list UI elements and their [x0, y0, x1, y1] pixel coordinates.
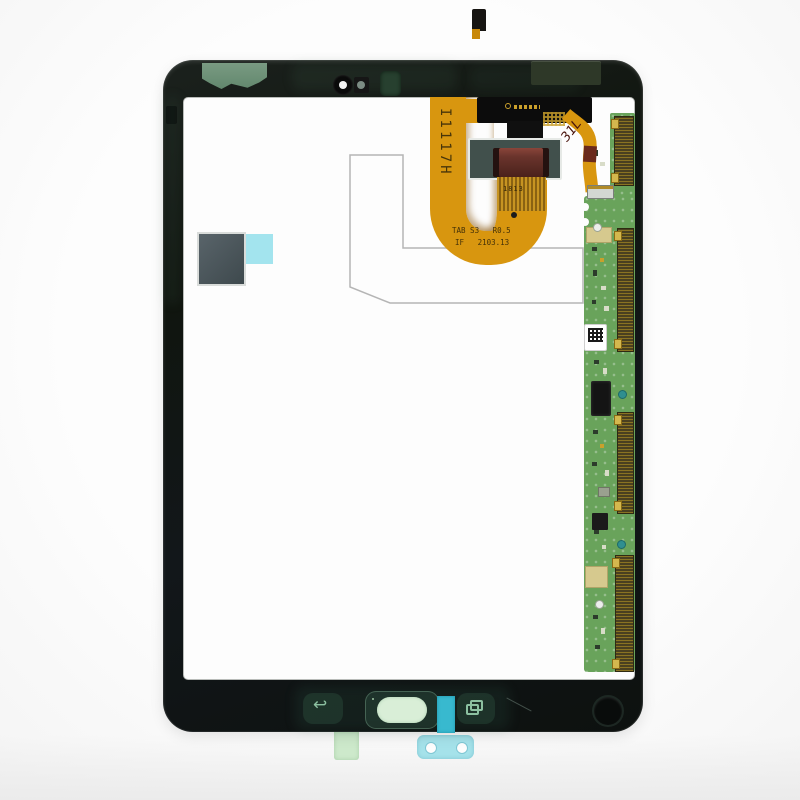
- pcb-component: [601, 286, 606, 290]
- branch-board-connector: [587, 185, 614, 199]
- pcb-component: [600, 444, 604, 448]
- flex-black-dot: [511, 212, 517, 218]
- adhesive-tape-cyan-strip: [437, 696, 455, 733]
- proximity-sensor-lens: [357, 81, 365, 89]
- pcb-test-point-2: [617, 540, 626, 549]
- pcb-component: [594, 360, 599, 364]
- adhesive-tape-cyan-small: [245, 234, 273, 264]
- board-connector-3: [617, 412, 634, 514]
- pcb-notch-1: [581, 203, 589, 211]
- tape-hole-right: [456, 742, 468, 754]
- front-camera-lens: [339, 81, 347, 89]
- recents-button-icon-inner: [466, 704, 479, 715]
- pcb-notch-2: [581, 218, 589, 226]
- top-flex-tab: [472, 9, 486, 31]
- pcb-component: [603, 368, 607, 374]
- pcb-component: [593, 430, 598, 434]
- frame-corner-hole: [594, 697, 622, 725]
- photo-canvas: 1813 I1117H TAB S3 R0.5 IF 2103.13 31L ↩: [0, 0, 800, 800]
- pcb-component: [592, 300, 596, 304]
- back-button-icon: ↩: [313, 695, 327, 715]
- top-flex-tab-copper: [472, 29, 480, 39]
- pcb-hole-2: [595, 600, 604, 609]
- bezel-sticker-olive: [531, 61, 601, 85]
- pcb-component: [604, 306, 609, 311]
- bezel-cutout-green: [380, 71, 401, 96]
- pcb-ic-small: [592, 513, 608, 530]
- flex-revision-marking: IF 2103.13: [455, 238, 509, 247]
- board-connector-2: [617, 228, 634, 352]
- back-button-area: ↩: [303, 693, 343, 724]
- dark-square-pad: [197, 232, 246, 286]
- pcb-chip-gray: [598, 487, 610, 497]
- pcb-component: [593, 615, 598, 619]
- pcb-component: [592, 247, 597, 251]
- board-connector-4: [615, 555, 634, 672]
- background-vignette: [0, 735, 800, 800]
- pcb-test-point-1: [618, 390, 627, 399]
- flex-branch-stiffener: [590, 146, 591, 162]
- qr-code-label: [584, 324, 607, 351]
- pcb-ic-large: [591, 381, 611, 416]
- adhesive-tape-mint-tab: [334, 731, 359, 760]
- flex-vertical-code: I1117H: [437, 108, 453, 218]
- flex-gold-logo-dot: [505, 103, 511, 109]
- qr-code-pattern: [588, 328, 603, 342]
- pcb-component: [595, 645, 600, 649]
- pcb-component: [601, 628, 605, 634]
- lcd-connector-plug: [493, 148, 549, 177]
- bezel-smudge-top: [292, 63, 457, 91]
- flex-gold-print-marks: [514, 105, 540, 109]
- pcb-pad-tan-2: [585, 566, 608, 588]
- pcb-component: [592, 462, 597, 466]
- tape-hole-left: [425, 742, 437, 754]
- home-button-pill: [377, 697, 427, 723]
- pcb-component: [602, 545, 606, 549]
- pcb-component: [594, 530, 599, 534]
- pcb-hole-1: [593, 223, 602, 232]
- pcb-component: [600, 258, 604, 262]
- flex-contact-fingers: [497, 177, 546, 211]
- pcb-component: [605, 470, 609, 476]
- bezel-smudge-left-rail: [165, 95, 180, 305]
- flex-model-marking: TAB S3 R0.5: [452, 226, 511, 235]
- flex-bridge-copper: [458, 99, 478, 123]
- home-button-dot: [372, 698, 374, 700]
- pcb-component: [593, 270, 597, 276]
- flex-finger-marking: 1813: [503, 185, 524, 193]
